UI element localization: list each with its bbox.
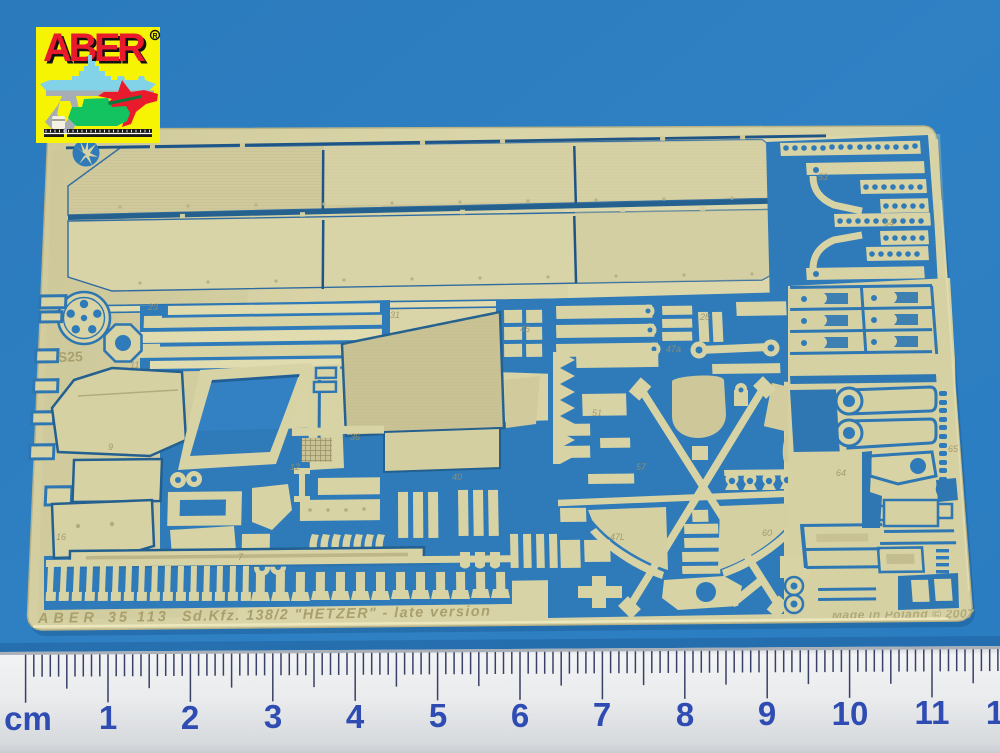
- svg-text:9: 9: [108, 442, 113, 452]
- svg-text:1: 1: [99, 699, 117, 736]
- svg-text:10: 10: [832, 695, 869, 732]
- svg-text:2: 2: [181, 699, 199, 736]
- svg-text:40: 40: [452, 472, 462, 482]
- svg-text:47L: 47L: [610, 532, 625, 542]
- svg-text:7: 7: [593, 696, 611, 733]
- svg-text:S25: S25: [58, 348, 84, 365]
- svg-text:57: 57: [636, 462, 647, 472]
- svg-text:cm: cm: [4, 700, 52, 737]
- svg-text:64: 64: [836, 468, 846, 478]
- svg-text:3: 3: [264, 698, 282, 735]
- svg-text:23: 23: [147, 302, 158, 312]
- svg-text:54: 54: [884, 218, 894, 228]
- svg-text:53: 53: [818, 172, 828, 182]
- svg-text:9: 9: [758, 695, 776, 732]
- svg-text:60: 60: [762, 528, 772, 538]
- svg-text:5: 5: [429, 697, 447, 734]
- svg-text:31: 31: [390, 310, 400, 320]
- svg-text:11: 11: [130, 360, 139, 370]
- svg-text:16: 16: [56, 532, 66, 542]
- svg-text:6: 6: [511, 697, 529, 734]
- svg-text:36: 36: [350, 432, 360, 442]
- svg-text:45: 45: [520, 324, 531, 334]
- svg-text:28: 28: [699, 312, 710, 322]
- svg-text:11: 11: [915, 694, 950, 731]
- svg-text:47a: 47a: [666, 344, 681, 354]
- svg-text:1: 1: [986, 694, 1000, 731]
- svg-text:65: 65: [948, 444, 959, 454]
- svg-text:51: 51: [592, 408, 602, 418]
- svg-text:12: 12: [290, 462, 300, 472]
- svg-text:8: 8: [676, 696, 694, 733]
- svg-text:4: 4: [346, 698, 365, 735]
- svg-text:R: R: [152, 33, 157, 40]
